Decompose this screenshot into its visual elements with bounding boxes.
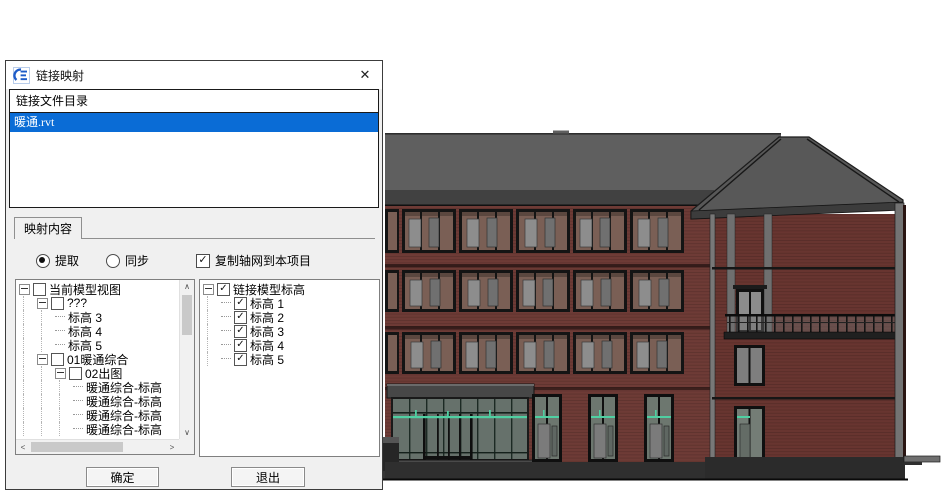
tab-mapping-content[interactable]: 映射内容 (14, 217, 82, 239)
checkbox-copy-grid-label: 复制轴网到本项目 (215, 252, 311, 269)
current-model-views-tree[interactable]: 当前模型视图???标高 3标高 4标高 501暖通综合02出图暖通综合-标高暖通… (16, 280, 179, 439)
tree-item[interactable]: ✓标高 5 (203, 352, 379, 366)
corner-trim (895, 203, 904, 462)
horizontal-scrollbar[interactable]: < > (16, 439, 179, 454)
gable-window-ground (734, 406, 765, 465)
file-item-selected[interactable]: 暖通.rvt (10, 113, 378, 132)
building-model (380, 0, 941, 502)
balcony (724, 314, 905, 339)
ground-line (382, 479, 908, 481)
tree-item[interactable]: ✓链接模型标高 (203, 282, 379, 296)
tree-expander-minus-icon[interactable] (19, 284, 30, 295)
tree-connector (73, 428, 83, 430)
scroll-up-icon[interactable]: ∧ (180, 280, 194, 293)
door-lintel (733, 285, 767, 289)
ground-floor-windows (532, 394, 674, 462)
tree-item-label: 当前模型视图 (49, 281, 121, 298)
scrollbar-corner (179, 439, 194, 454)
dialog-title: 链接映射 (36, 67, 84, 84)
tree-connector (55, 316, 65, 318)
linked-file-list[interactable]: 链接文件目录 暖通.rvt (9, 89, 379, 208)
gable-window-mid (734, 345, 765, 386)
gable-plinth (705, 457, 905, 480)
tree-connector (221, 330, 231, 332)
file-list-header: 链接文件目录 (10, 90, 378, 113)
tree-item[interactable]: ✓标高 4 (203, 338, 379, 352)
radio-extract-label: 提取 (55, 252, 79, 269)
tree-item[interactable]: 当前模型视图 (19, 282, 179, 296)
tree-expander-minus-icon[interactable] (55, 368, 66, 379)
tree-item[interactable]: 暖通综合-标高 (19, 422, 179, 436)
tree-connector (221, 302, 231, 304)
tree-checkbox[interactable]: ✓ (234, 339, 247, 352)
scroll-left-icon[interactable]: < (16, 441, 30, 454)
dialog-titlebar[interactable]: 链接映射 ✕ (6, 61, 382, 89)
radio-extract-icon[interactable] (36, 254, 50, 268)
tree-expander-minus-icon[interactable] (203, 284, 214, 295)
scroll-down-icon[interactable]: ∨ (180, 426, 194, 439)
tree-expander-minus-icon[interactable] (37, 354, 48, 365)
tree-item-label: 标高 5 (250, 351, 284, 368)
tree-connector (55, 330, 65, 332)
current-model-views-panel: 当前模型视图???标高 3标高 4标高 501暖通综合02出图暖通综合-标高暖通… (15, 279, 195, 455)
vertical-scrollbar[interactable]: ∧ ∨ (179, 280, 194, 439)
scroll-right-icon[interactable]: > (165, 441, 179, 454)
tree-checkbox[interactable] (51, 353, 64, 366)
tree-item-label: 暖通综合-标高 (86, 421, 162, 438)
tree-connector (73, 386, 83, 388)
radio-sync-label: 同步 (125, 252, 149, 269)
exit-button[interactable]: 退出 (231, 467, 305, 487)
linked-model-levels-panel: ✓链接模型标高✓标高 1✓标高 2✓标高 3✓标高 4✓标高 5 (199, 279, 380, 457)
tree-expander-minus-icon[interactable] (37, 298, 48, 309)
window-rows (385, 209, 684, 374)
linked-model-levels-tree[interactable]: ✓链接模型标高✓标高 1✓标高 2✓标高 3✓标高 4✓标高 5 (200, 280, 379, 456)
horizontal-scroll-thumb[interactable] (31, 442, 123, 452)
revit-3d-view[interactable] (380, 0, 941, 502)
side-ledge (904, 456, 940, 462)
tree-checkbox[interactable]: ✓ (234, 325, 247, 338)
tree-checkbox[interactable]: ✓ (234, 353, 247, 366)
gable-wing (691, 137, 940, 480)
tree-checkbox[interactable]: ✓ (217, 283, 230, 296)
close-icon[interactable]: ✕ (348, 62, 382, 88)
vertical-scroll-thumb[interactable] (182, 295, 192, 335)
tree-item[interactable]: ✓标高 1 (203, 296, 379, 310)
tree-checkbox[interactable] (51, 297, 64, 310)
checkbox-copy-grid[interactable]: ✓ 复制轴网到本项目 (196, 252, 311, 269)
radio-sync[interactable]: 同步 (106, 252, 149, 269)
tree-checkbox[interactable]: ✓ (234, 297, 247, 310)
tree-connector (73, 400, 83, 402)
tree-connector (221, 358, 231, 360)
tree-item[interactable]: ✓标高 3 (203, 324, 379, 338)
tree-connector (73, 414, 83, 416)
ok-button[interactable]: 确定 (86, 467, 159, 487)
tree-connector (55, 344, 65, 346)
tree-checkbox[interactable] (69, 367, 82, 380)
tree-checkbox[interactable]: ✓ (234, 311, 247, 324)
tree-checkbox[interactable] (33, 283, 46, 296)
tree-connector (221, 316, 231, 318)
radio-sync-icon[interactable] (106, 254, 120, 268)
link-mapping-dialog: 链接映射 ✕ 链接文件目录 暖通.rvt 映射内容 提取 同步 ✓ 复制轴网到本… (5, 60, 383, 490)
app-logo-icon (13, 67, 30, 84)
plinth (385, 462, 712, 480)
radio-extract[interactable]: 提取 (36, 252, 79, 269)
tree-connector (221, 344, 231, 346)
checkbox-copy-grid-icon[interactable]: ✓ (196, 254, 210, 268)
tree-item[interactable]: ✓标高 2 (203, 310, 379, 324)
